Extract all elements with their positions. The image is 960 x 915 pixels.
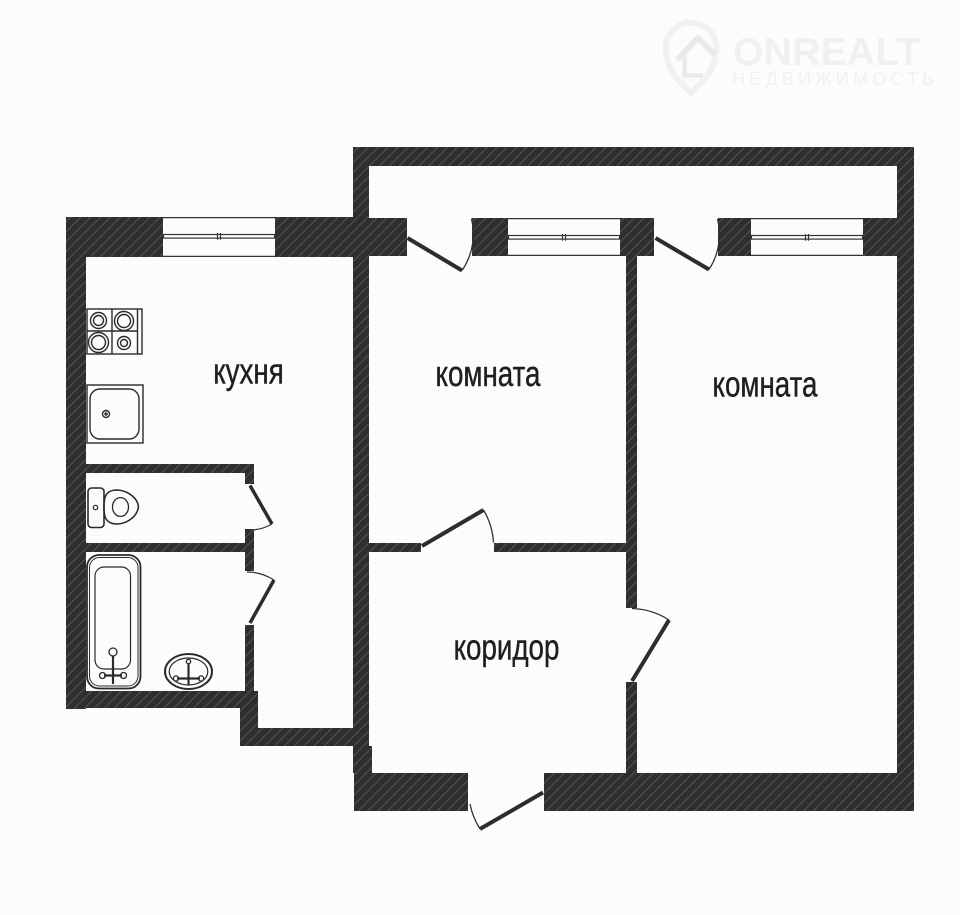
svg-text:комната: комната (713, 364, 819, 405)
svg-text:комната: комната (436, 353, 542, 394)
svg-text:НЕДВИЖИМОСТЬ: НЕДВИЖИМОСТЬ (732, 69, 938, 89)
svg-text:кухня: кухня (213, 351, 284, 392)
svg-text:ONREALT: ONREALT (733, 31, 921, 74)
svg-text:коридор: коридор (454, 627, 560, 668)
